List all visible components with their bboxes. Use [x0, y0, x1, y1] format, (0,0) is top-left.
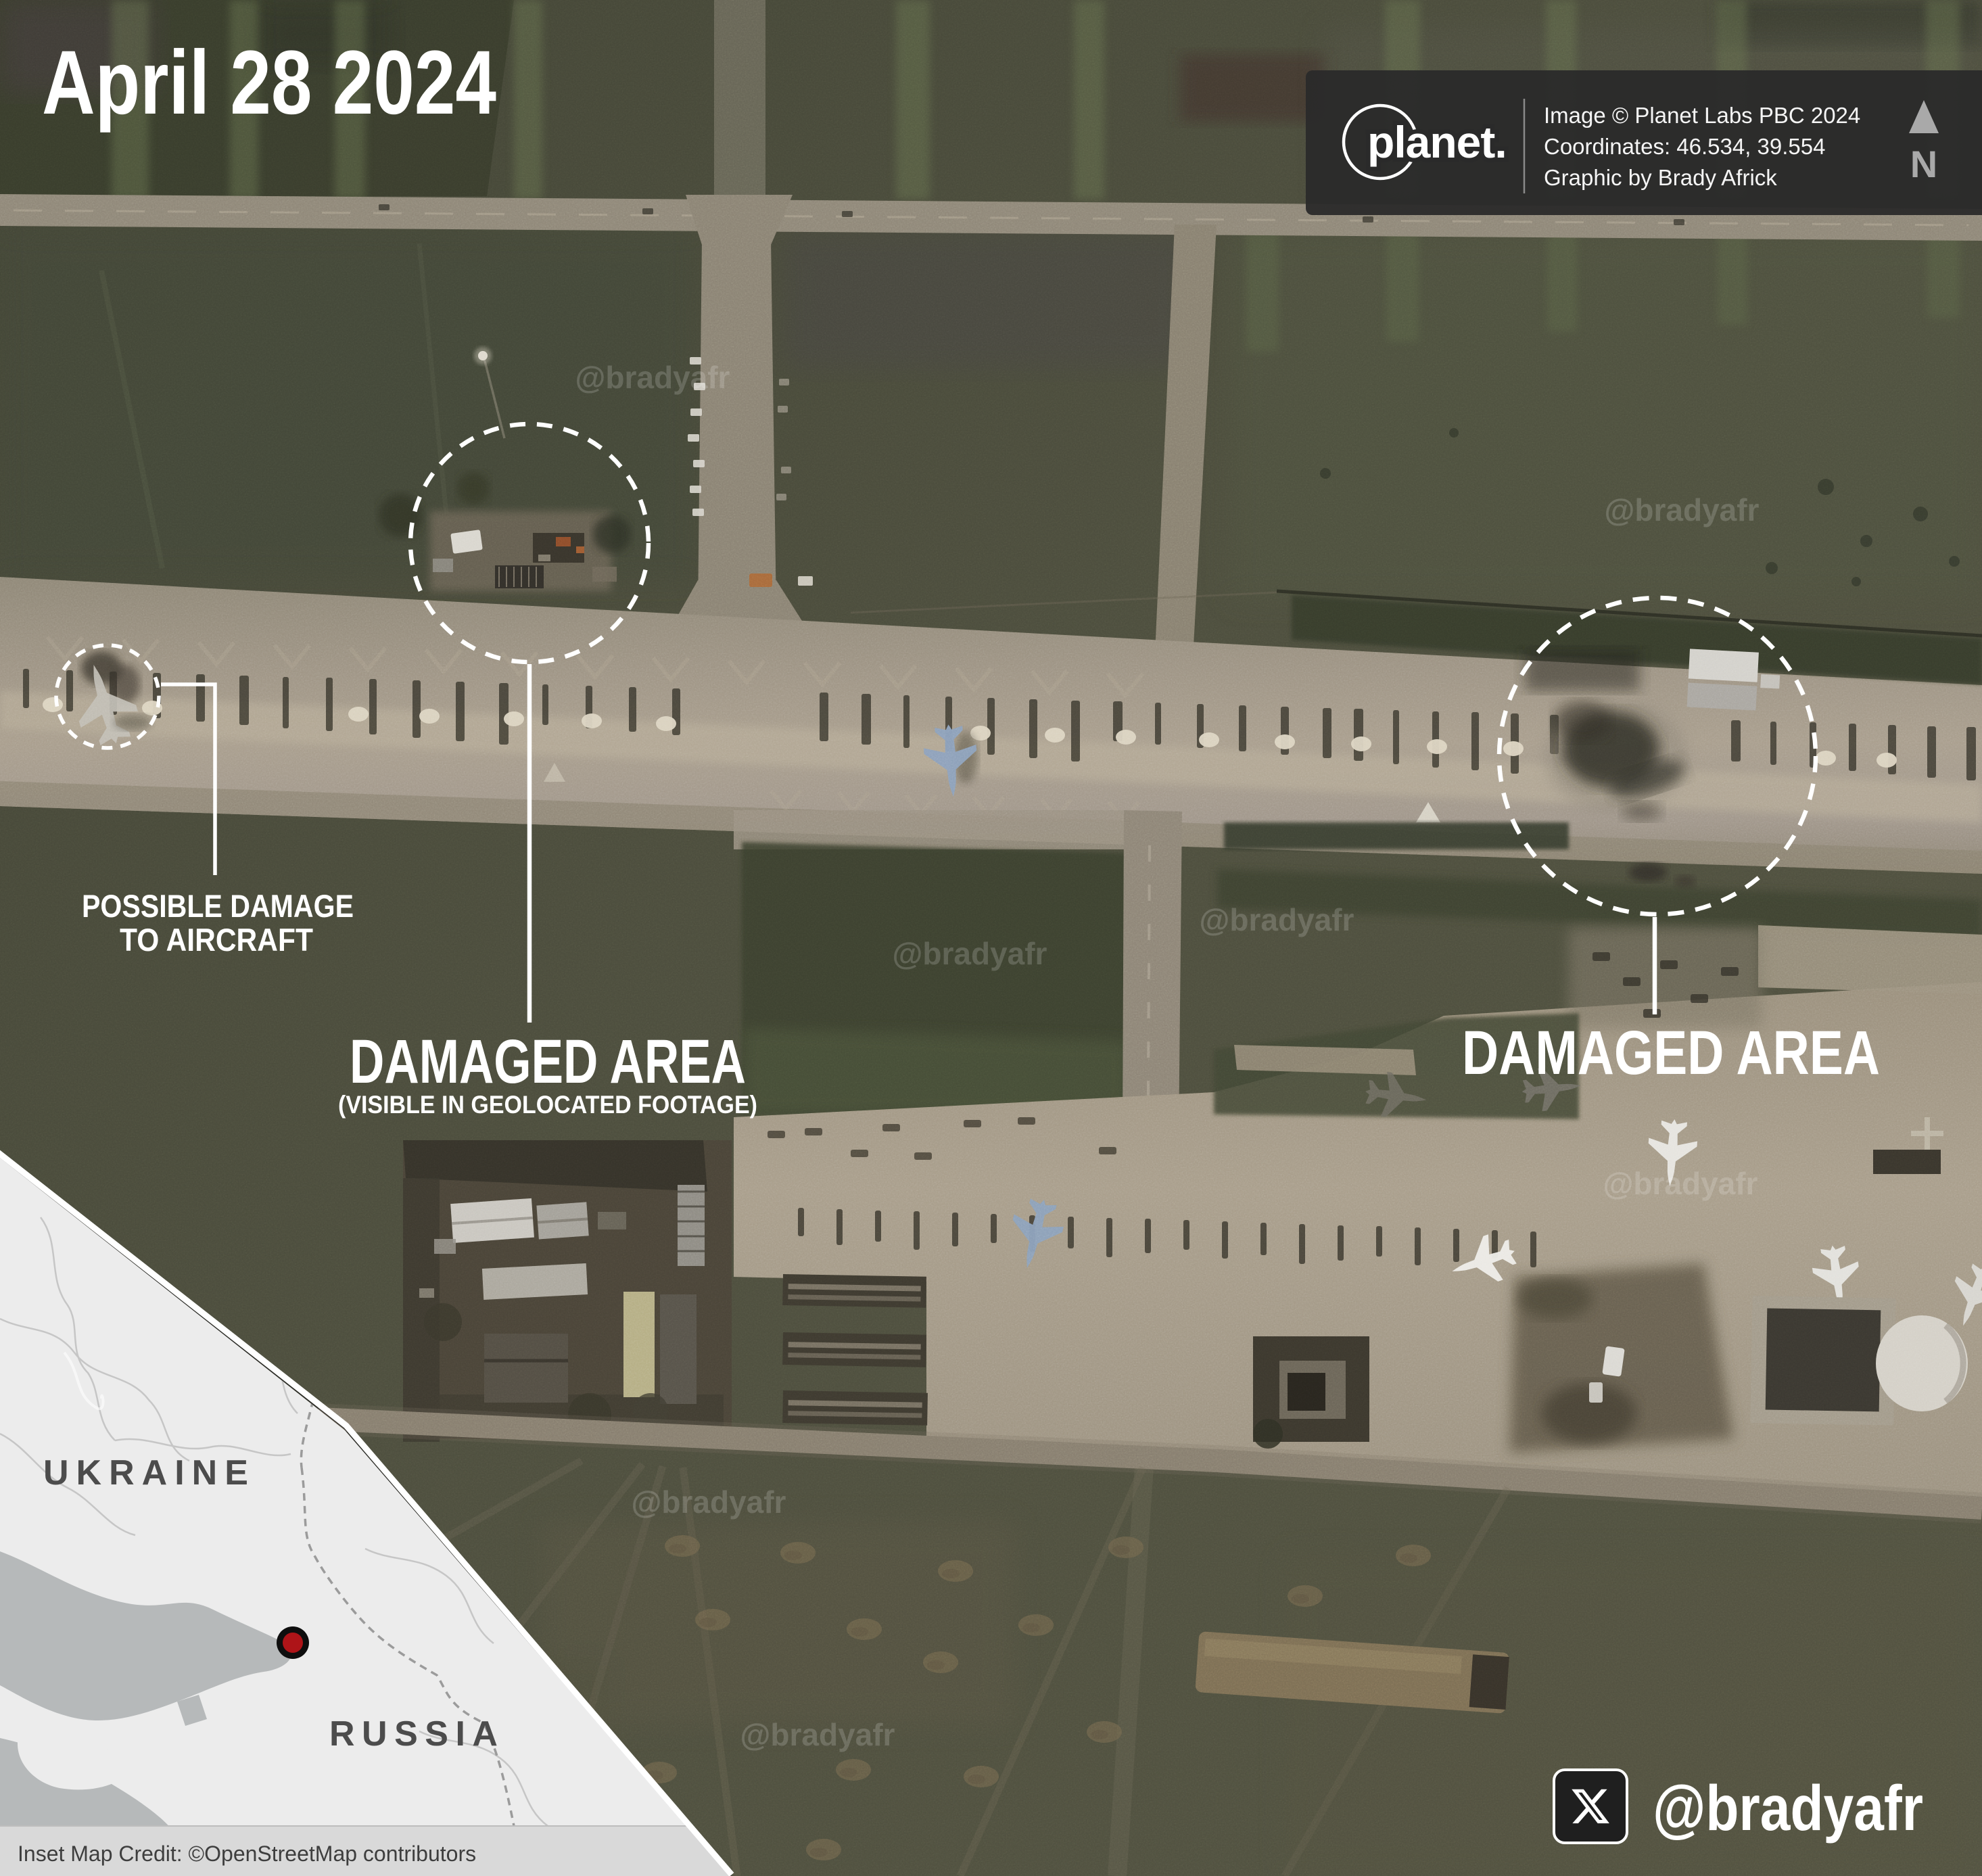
svg-text:DAMAGED AREA: DAMAGED AREA: [350, 1027, 746, 1096]
svg-text:April 28 2024: April 28 2024: [42, 32, 496, 133]
svg-text:@bradyafr: @bradyafr: [1603, 1166, 1758, 1201]
svg-text:(VISIBLE IN GEOLOCATED FOOTAGE: (VISIBLE IN GEOLOCATED FOOTAGE): [338, 1091, 757, 1119]
svg-text:Coordinates: 46.534, 39.554: Coordinates: 46.534, 39.554: [1544, 134, 1825, 159]
svg-text:@bradyafr: @bradyafr: [893, 936, 1047, 971]
svg-text:@bradyafr: @bradyafr: [575, 360, 730, 395]
svg-text:planet.: planet.: [1367, 117, 1507, 167]
svg-text:@bradyafr: @bradyafr: [632, 1484, 786, 1520]
svg-text:@bradyafr: @bradyafr: [1200, 902, 1354, 937]
svg-text:@bradyafr: @bradyafr: [1605, 492, 1760, 527]
svg-text:DAMAGED AREA: DAMAGED AREA: [1462, 1018, 1880, 1087]
svg-text:@bradyafr: @bradyafr: [740, 1717, 895, 1752]
svg-text:POSSIBLE DAMAGE: POSSIBLE DAMAGE: [82, 888, 354, 924]
svg-text:UKRAINE: UKRAINE: [43, 1453, 256, 1493]
svg-text:Image © Planet Labs PBC 2024: Image © Planet Labs PBC 2024: [1544, 103, 1860, 128]
svg-text:N: N: [1910, 143, 1937, 185]
svg-text:TO AIRCRAFT: TO AIRCRAFT: [120, 922, 313, 958]
svg-text:@bradyafr: @bradyafr: [1653, 1773, 1923, 1844]
svg-text:RUSSIA: RUSSIA: [329, 1714, 504, 1754]
svg-text:Graphic by Brady Africk: Graphic by Brady Africk: [1544, 165, 1777, 190]
svg-text:Inset Map Credit: ©OpenStreetM: Inset Map Credit: ©OpenStreetMap contrib…: [18, 1842, 476, 1866]
